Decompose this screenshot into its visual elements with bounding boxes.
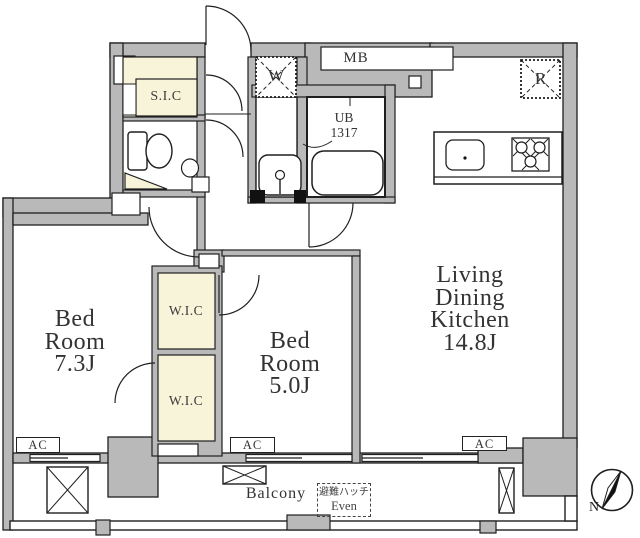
toilet-icon	[128, 132, 172, 170]
washer-label: W	[256, 67, 296, 84]
fridge-label: R	[521, 70, 560, 87]
ac-unit-bedroom1: AC	[16, 437, 60, 453]
wic-lower-label: W.I.C	[154, 394, 218, 408]
compass-north-label: N	[585, 501, 603, 515]
bedroom1-size: 7.3J	[10, 353, 140, 376]
ac-unit-bedroom2: AC	[230, 437, 275, 453]
washbasin-icon	[259, 155, 301, 195]
sic-label: S.I.C	[134, 90, 198, 104]
ac-unit-ldk: AC	[462, 436, 507, 451]
ldk-label: Living Dining Kitchen 14.8J	[390, 264, 550, 354]
windows	[30, 454, 478, 462]
bathtub-icon	[312, 151, 383, 195]
hand-basin-icon	[182, 159, 199, 177]
ldk-size: 14.8J	[390, 332, 550, 355]
bedroom2-label: Bed Room 5.0J	[225, 330, 355, 398]
kitchen-sink-icon	[446, 140, 484, 170]
hall-door-arc	[206, 75, 242, 111]
balcony-label: Balcony	[230, 486, 322, 502]
wic-upper-door-arc	[219, 275, 259, 315]
meter-box-label: MB	[330, 51, 382, 66]
vanity-counter-right	[294, 190, 306, 203]
bedroom2-size: 5.0J	[225, 375, 355, 398]
bedroom1-label: Bed Room 7.3J	[10, 308, 140, 376]
wic-upper-label: W.I.C	[154, 304, 218, 318]
entrance-door-arc	[206, 6, 251, 51]
vanity-counter-left	[250, 190, 265, 203]
kitchen-counter	[434, 132, 562, 184]
toilet-door-arc	[206, 120, 243, 157]
evacuation-hatch-label: 避難ハッチ Even	[317, 483, 371, 517]
bedroom1-door-arc	[149, 207, 199, 257]
floorplan: Living Dining Kitchen 14.8J Bed Room 7.3…	[0, 0, 640, 538]
entry-step-wedge	[125, 173, 167, 189]
ldk-door-arc	[309, 203, 353, 247]
unit-bath-label: UB 1317	[312, 110, 376, 140]
